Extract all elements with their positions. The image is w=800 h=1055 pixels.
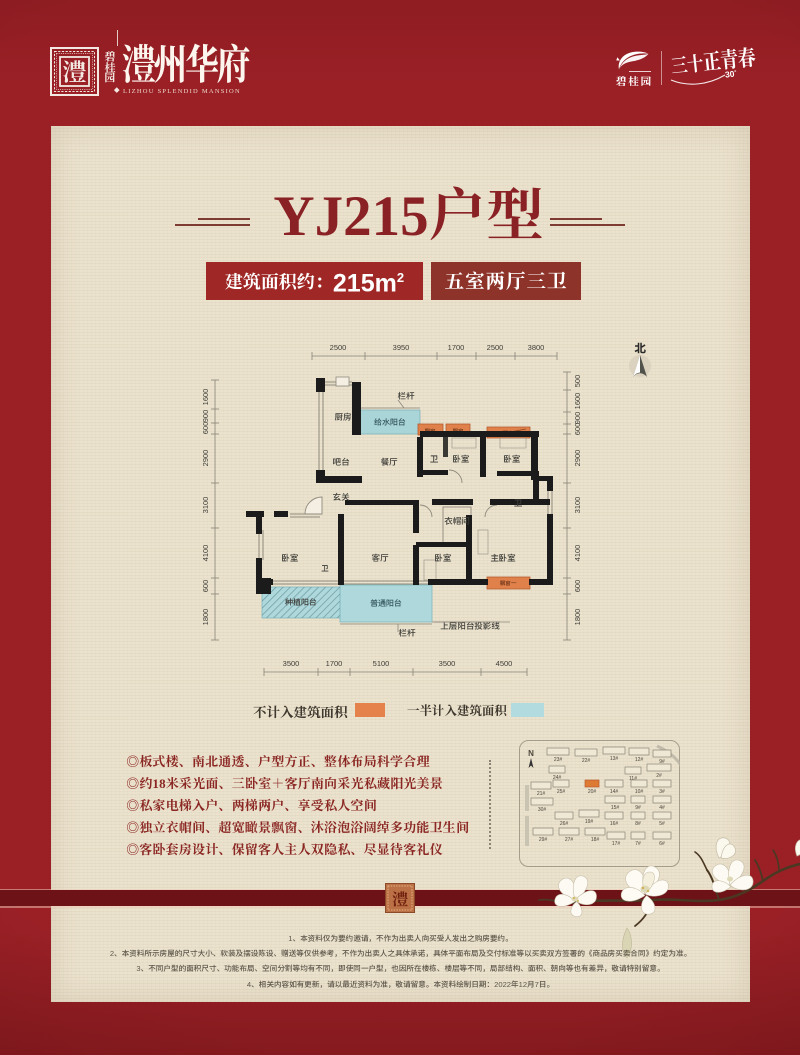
svg-text:4#: 4#: [659, 804, 665, 811]
svg-text:1600: 1600: [200, 389, 211, 406]
svg-text:1800: 1800: [572, 609, 583, 626]
svg-text:北: 北: [634, 340, 647, 356]
svg-text:600: 600: [572, 580, 583, 593]
svg-text:2900: 2900: [572, 450, 583, 467]
svg-text:栏杆: 栏杆: [396, 390, 415, 402]
svg-text:普通阳台: 普通阳台: [370, 598, 402, 609]
svg-text:卧室: 卧室: [503, 453, 520, 465]
svg-text:玄关: 玄关: [332, 491, 350, 503]
svg-text:卫: 卫: [430, 453, 439, 465]
svg-text:给水阳台: 给水阳台: [373, 417, 406, 428]
svg-text:飘窗一: 飘窗一: [500, 579, 517, 587]
svg-text:4100: 4100: [572, 545, 583, 562]
svg-text:2#: 2#: [656, 772, 662, 779]
svg-text:26#: 26#: [560, 820, 569, 827]
svg-text:900: 900: [200, 410, 211, 423]
svg-text:卧室: 卧室: [281, 552, 298, 564]
svg-text:2500: 2500: [487, 342, 504, 353]
svg-text:600: 600: [200, 422, 211, 435]
svg-text:种植阳台: 种植阳台: [284, 597, 317, 608]
svg-text:16#: 16#: [610, 820, 619, 827]
svg-text:3950: 3950: [393, 342, 410, 353]
svg-text:1600: 1600: [572, 393, 583, 410]
svg-text:8#: 8#: [635, 820, 641, 827]
svg-text:主卧室: 主卧室: [490, 552, 516, 564]
svg-text:24#: 24#: [553, 774, 562, 781]
svg-text:600: 600: [200, 580, 211, 593]
svg-text:澧: 澧: [63, 53, 87, 88]
svg-text:3800: 3800: [528, 342, 545, 353]
svg-text:客厅: 客厅: [371, 552, 389, 564]
svg-text:19#: 19#: [585, 818, 594, 825]
svg-text:4500: 4500: [496, 658, 513, 669]
svg-text:卧室: 卧室: [434, 552, 451, 564]
svg-text:1700: 1700: [326, 658, 343, 669]
svg-text:餐厅: 餐厅: [380, 456, 398, 468]
svg-text:澧: 澧: [392, 887, 408, 910]
svg-text:卧室: 卧室: [452, 453, 469, 465]
svg-text:500: 500: [572, 375, 583, 388]
svg-text:900: 900: [572, 412, 583, 425]
svg-text:22#: 22#: [582, 757, 591, 764]
svg-text:13#: 13#: [610, 755, 619, 762]
svg-text:3500: 3500: [439, 658, 456, 669]
svg-text:卫: 卫: [321, 563, 329, 574]
svg-text:21#: 21#: [537, 790, 546, 797]
svg-text:N: N: [528, 748, 534, 759]
svg-text:5#: 5#: [659, 820, 665, 827]
svg-text:4100: 4100: [200, 545, 211, 562]
svg-text:5100: 5100: [373, 658, 390, 669]
svg-text:30#: 30#: [538, 806, 547, 813]
svg-text:25#: 25#: [557, 788, 566, 795]
svg-text:厨房: 厨房: [334, 411, 351, 423]
svg-text:600: 600: [572, 423, 583, 436]
svg-text:9#: 9#: [659, 758, 665, 765]
svg-text:11#: 11#: [629, 775, 637, 782]
svg-text:3100: 3100: [572, 497, 583, 514]
svg-text:1800: 1800: [200, 609, 211, 626]
svg-text:2500: 2500: [330, 342, 347, 353]
svg-text:1700: 1700: [448, 342, 465, 353]
svg-text:23#: 23#: [554, 756, 563, 763]
svg-text:衣帽间: 衣帽间: [444, 515, 470, 527]
svg-text:14#: 14#: [610, 788, 619, 795]
svg-text:栏杆: 栏杆: [397, 627, 416, 639]
svg-text:3500: 3500: [283, 658, 300, 669]
svg-text:卫: 卫: [514, 497, 523, 509]
svg-text:3#: 3#: [659, 788, 665, 795]
svg-text:10#: 10#: [635, 788, 644, 795]
svg-text:15#: 15#: [611, 804, 620, 811]
svg-text:20#: 20#: [588, 788, 597, 795]
svg-text:吧台: 吧台: [332, 456, 350, 468]
svg-text:3100: 3100: [200, 497, 211, 514]
svg-text:12#: 12#: [635, 756, 644, 763]
svg-text:2900: 2900: [200, 450, 211, 467]
svg-text:9#: 9#: [635, 804, 641, 811]
